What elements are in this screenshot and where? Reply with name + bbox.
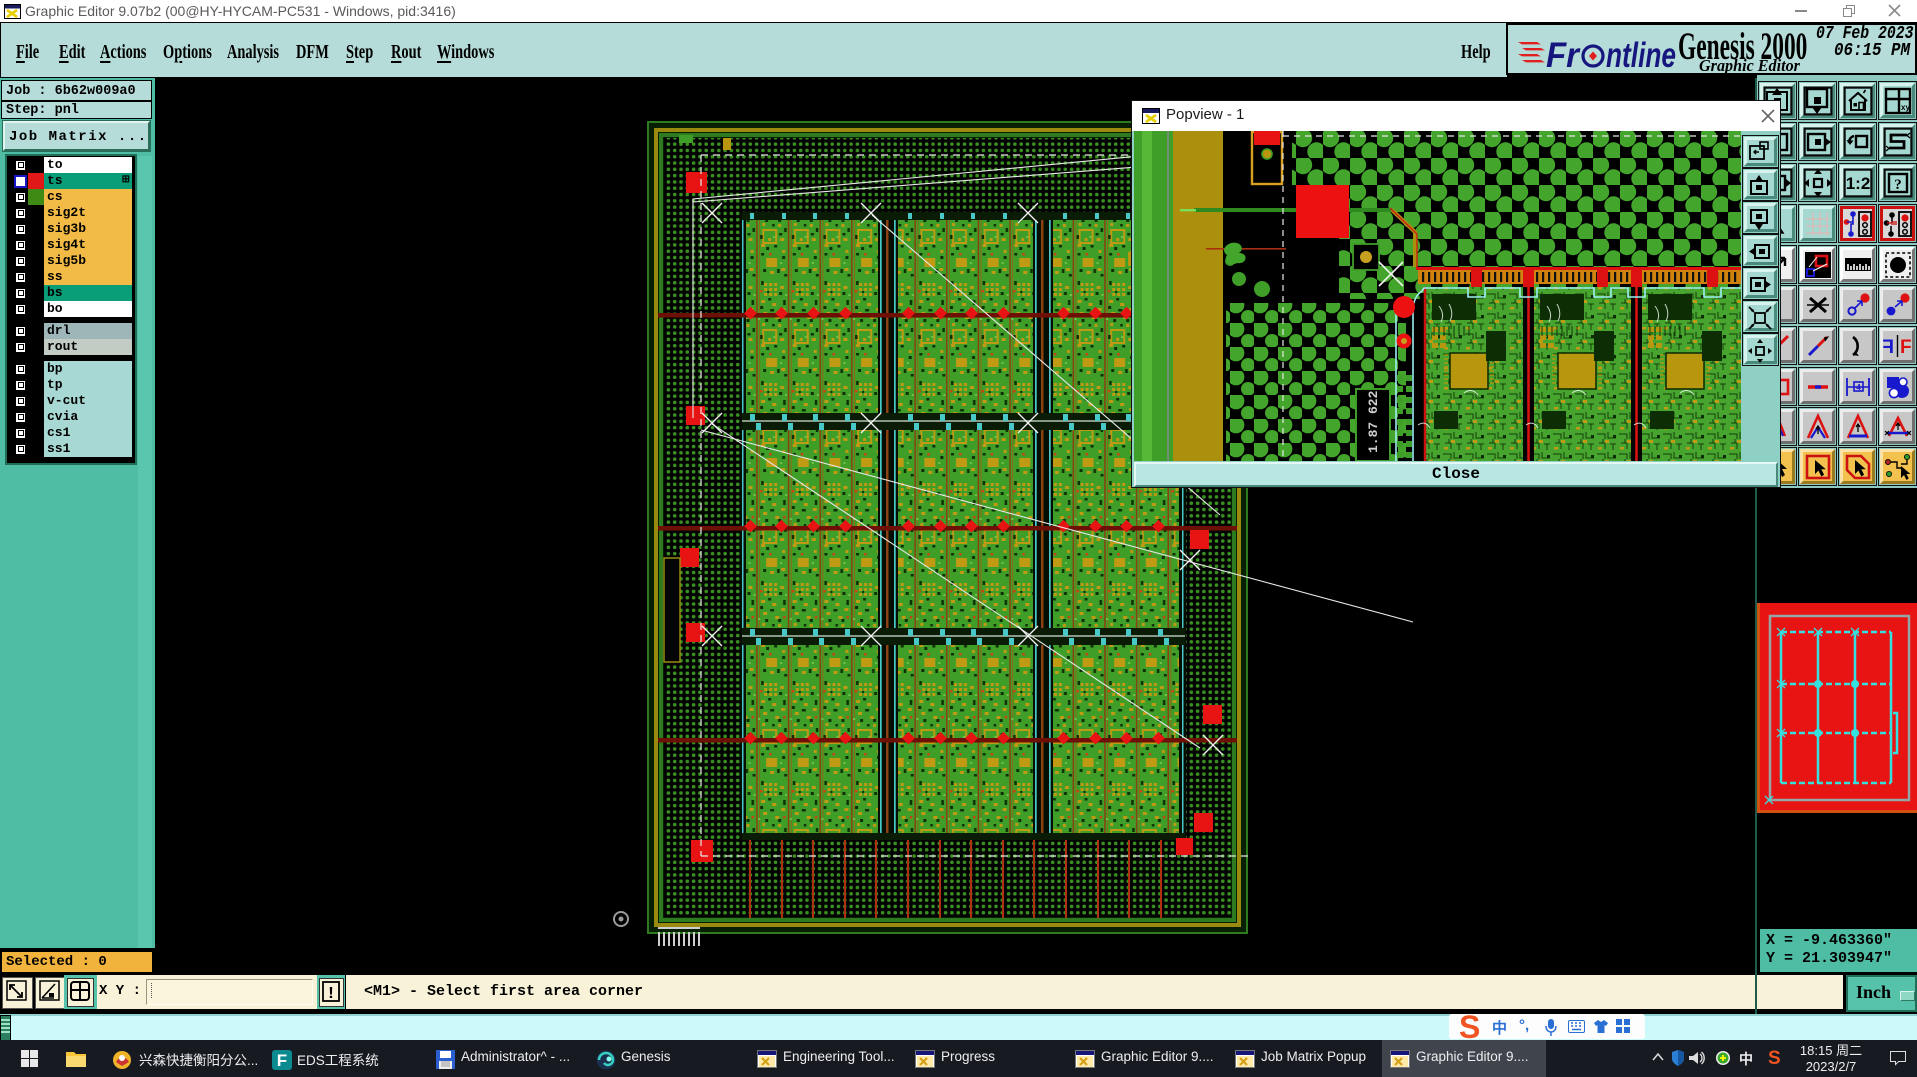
svg-text:ntline: ntline	[1606, 36, 1676, 73]
svg-text:xy: xy	[1901, 103, 1910, 112]
svg-text:F: F	[1900, 337, 1912, 358]
svg-text:Fr: Fr	[1546, 36, 1581, 73]
svg-text:?: ?	[1894, 177, 1902, 193]
svg-text:S: S	[1459, 1011, 1480, 1042]
svg-text:1.87 622: 1.87 622	[1366, 390, 1381, 453]
svg-text:1:2: 1:2	[1846, 174, 1871, 193]
svg-text:F: F	[277, 1051, 287, 1070]
svg-text:F: F	[1883, 337, 1894, 358]
svg-text:4: 4	[1856, 383, 1861, 392]
